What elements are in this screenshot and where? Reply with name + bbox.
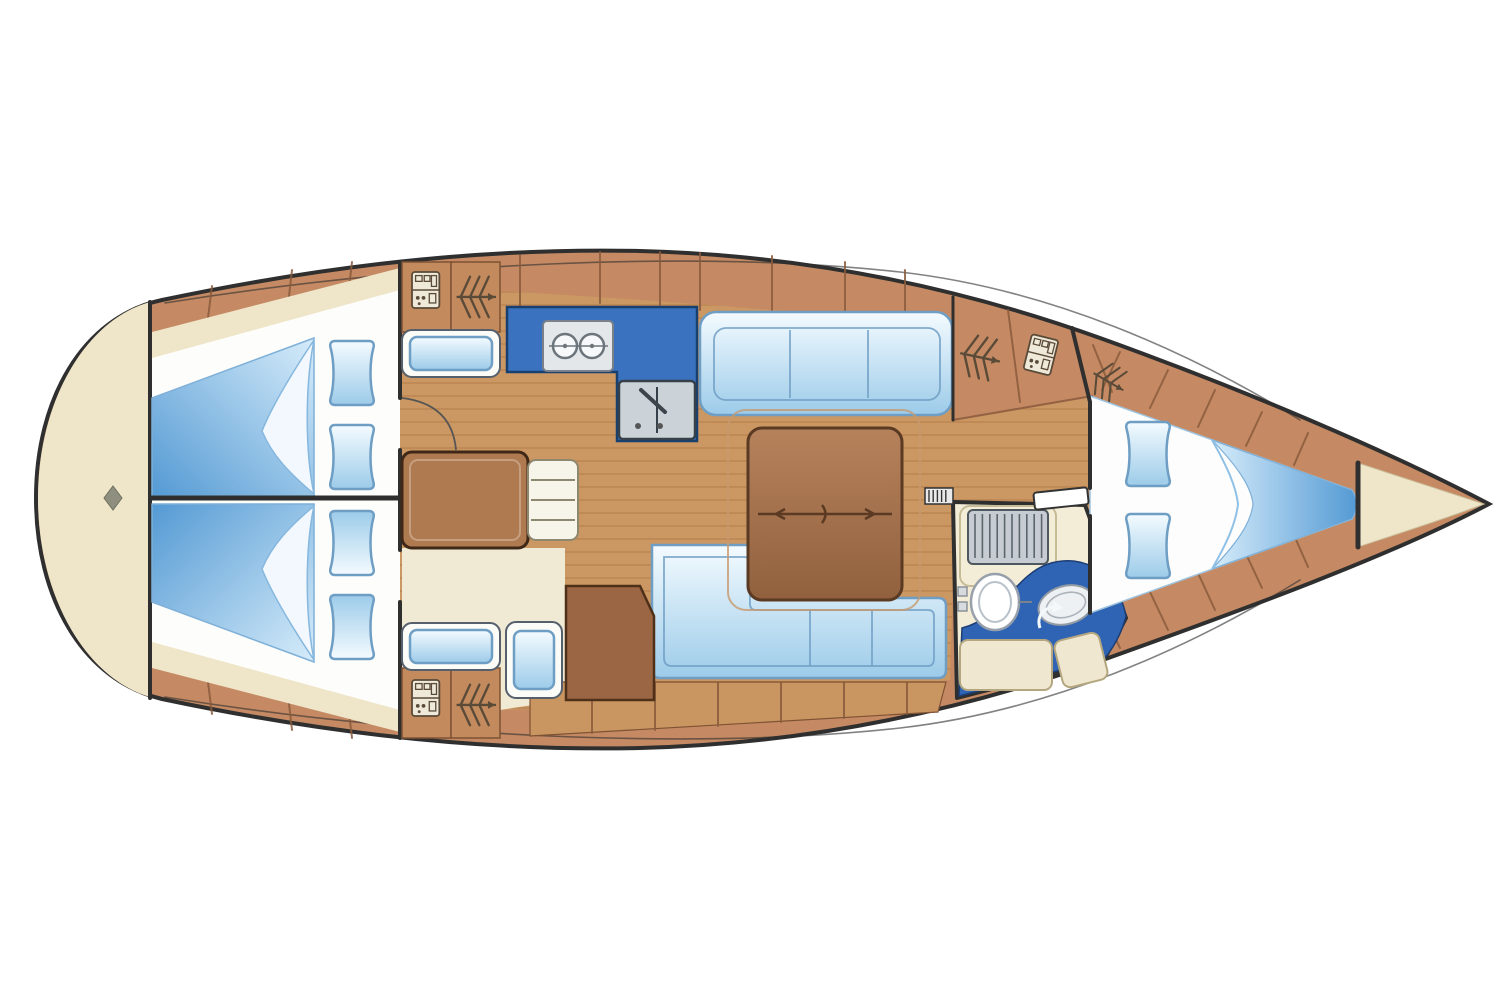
engine-box <box>402 452 528 548</box>
pillow-icon <box>330 425 374 489</box>
head-locker <box>1053 631 1109 689</box>
companionway-steps <box>402 452 578 548</box>
shelf-locker-icon <box>412 272 439 308</box>
locker-tile <box>451 668 500 738</box>
port-bench <box>402 623 500 670</box>
sailboat-deck-plan <box>0 0 1500 1000</box>
shelf-locker-icon <box>412 680 439 716</box>
head-locker <box>960 640 1052 690</box>
head-door-leaf-icon <box>925 488 953 504</box>
steps <box>528 460 578 540</box>
pillow-icon <box>1126 514 1170 578</box>
pillow-icon <box>330 341 374 405</box>
galley-sink-icon <box>619 381 695 439</box>
galley-bench <box>402 330 500 377</box>
saloon-table <box>748 428 902 600</box>
nav-seat <box>506 622 562 698</box>
swim-platform-stern <box>38 302 150 698</box>
pillow-icon <box>1126 422 1170 486</box>
boat-layout-canvas <box>0 0 1500 1000</box>
stern-cap <box>38 302 150 697</box>
shower-grate-icon <box>968 510 1048 564</box>
nav-table <box>566 586 654 700</box>
starboard-settee <box>700 312 952 415</box>
stove-icon <box>543 321 613 371</box>
